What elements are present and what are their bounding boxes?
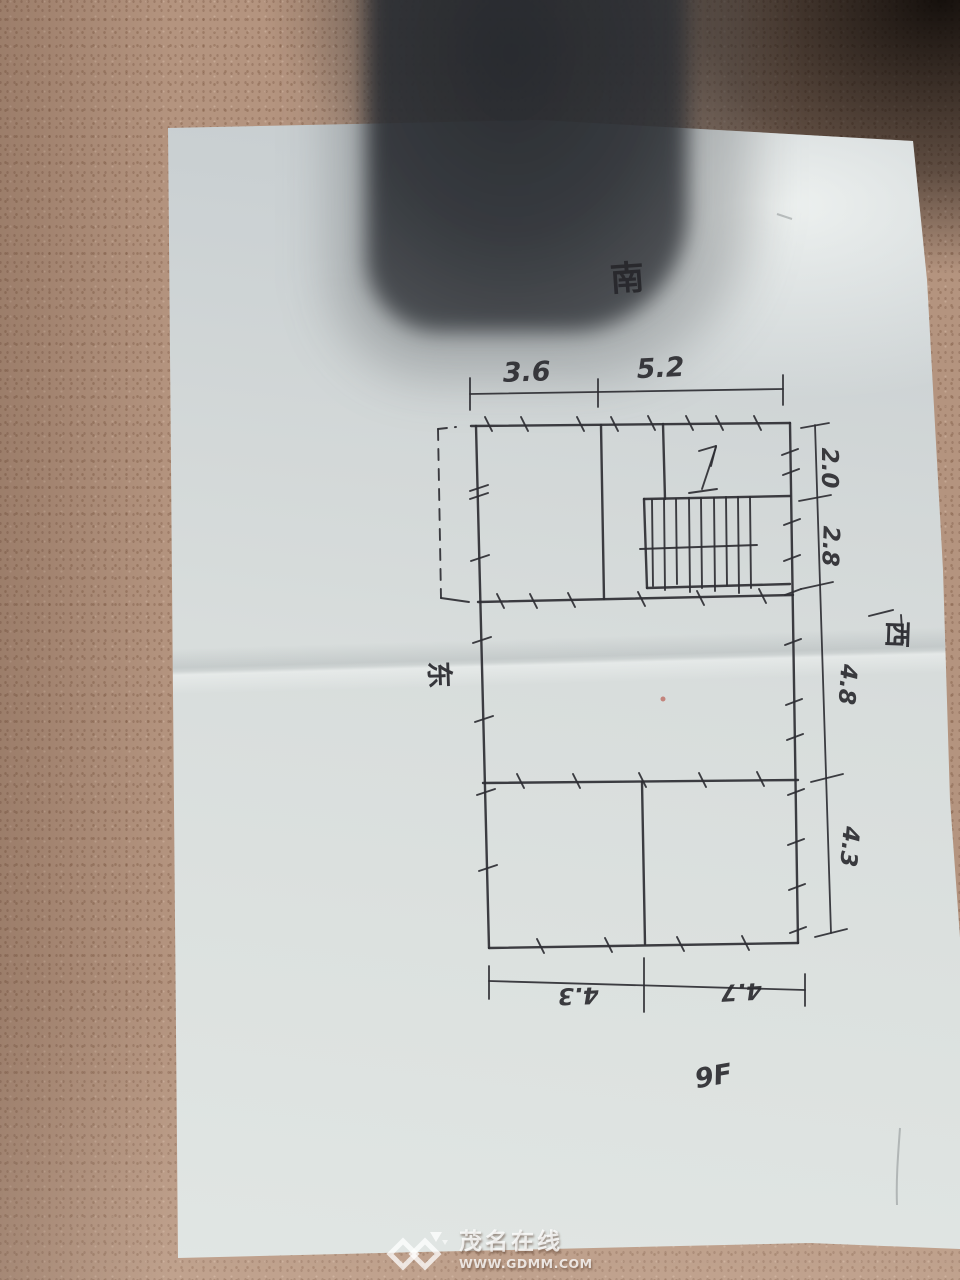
- dim-right-4: 4.3: [834, 824, 864, 868]
- dim-top-right: 5.2: [636, 352, 685, 385]
- orientation-south-label: 南: [609, 258, 646, 300]
- dim-right-3: 4.8: [833, 662, 862, 705]
- staircase: [640, 496, 790, 593]
- stair-up-arrow-icon: [689, 446, 717, 493]
- watermark: 茂名在线 WWW.GDMM.COM: [386, 1224, 593, 1276]
- dim-bottom-right: 4.7: [720, 977, 763, 1005]
- balcony-dashed-outline: [438, 427, 469, 602]
- dim-right-1: 2.0: [816, 448, 842, 489]
- exterior-walls: [471, 423, 798, 948]
- watermark-site-name: 茂名在线: [459, 1230, 593, 1254]
- watermark-logo-icon: [386, 1224, 450, 1276]
- dim-bottom-left: 4.3: [557, 981, 600, 1008]
- red-pen-dot: [661, 697, 666, 702]
- orientation-west-label: 西: [881, 620, 913, 648]
- dim-right-2: 2.8: [816, 525, 843, 567]
- floor-plan-drawing: 3.6 5.2 2.0 2.8 4.8 4.3 4.3 4.7 南 东 西 9F: [0, 0, 960, 1280]
- dim-top-left: 3.6: [502, 356, 551, 389]
- dimension-line-right: 2.0 2.8 4.8 4.3: [799, 423, 864, 937]
- dimension-line-top: 3.6 5.2: [470, 352, 783, 410]
- floor-label: 9F: [692, 1058, 735, 1095]
- watermark-url: WWW.GDMM.COM: [459, 1257, 593, 1270]
- photo-of-floor-plan-sketch: 3.6 5.2 2.0 2.8 4.8 4.3 4.3 4.7 南 东 西 9F: [0, 0, 960, 1280]
- dimension-line-bottom: 4.3 4.7: [489, 958, 805, 1012]
- orientation-east-label: 东: [423, 661, 456, 689]
